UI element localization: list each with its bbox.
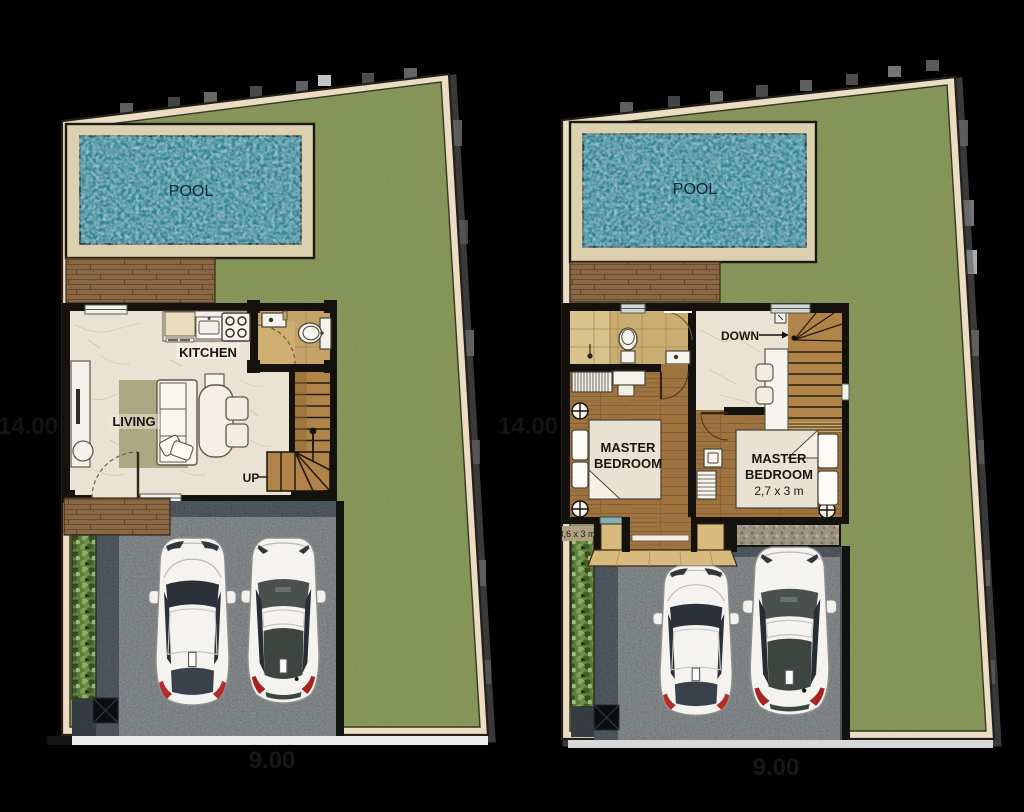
svg-text:9.00: 9.00: [753, 754, 800, 781]
svg-text:POOL: POOL: [673, 181, 718, 198]
svg-text:DOWN: DOWN: [721, 329, 759, 343]
svg-text:POOL: POOL: [169, 183, 214, 200]
svg-text:UP: UP: [243, 471, 260, 485]
svg-text:BEDROOM: BEDROOM: [745, 467, 813, 482]
svg-text:MASTER: MASTER: [752, 451, 808, 466]
svg-text:14.00: 14.00: [0, 413, 58, 440]
svg-text:2,7 x 3 m: 2,7 x 3 m: [754, 484, 803, 498]
svg-text:3,6 x 3 m: 3,6 x 3 m: [558, 529, 595, 539]
svg-text:LIVING: LIVING: [112, 414, 155, 429]
svg-text:KITCHEN: KITCHEN: [179, 345, 237, 360]
svg-text:9.00: 9.00: [249, 747, 296, 774]
svg-text:14.00: 14.00: [498, 413, 558, 440]
svg-text:MASTER: MASTER: [601, 440, 657, 455]
svg-text:BEDROOM: BEDROOM: [594, 456, 662, 471]
